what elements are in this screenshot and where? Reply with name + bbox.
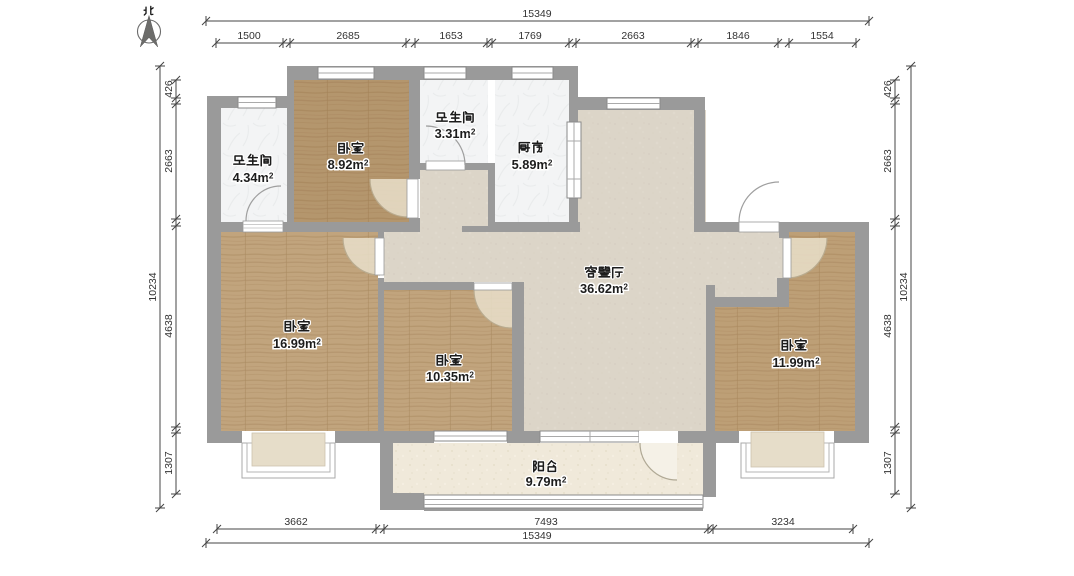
svg-text:3.31m2: 3.31m2 — [435, 126, 476, 141]
svg-text:426: 426 — [882, 80, 894, 98]
svg-text:5.89m2: 5.89m2 — [512, 157, 553, 172]
svg-text:16.99m2: 16.99m2 — [273, 336, 321, 351]
svg-text:1307: 1307 — [882, 451, 894, 475]
svg-text:3234: 3234 — [771, 516, 795, 528]
svg-text:1500: 1500 — [237, 30, 261, 42]
svg-text:15349: 15349 — [522, 8, 551, 20]
svg-text:10234: 10234 — [147, 272, 159, 301]
svg-text:10234: 10234 — [898, 272, 910, 301]
svg-text:1307: 1307 — [163, 451, 175, 475]
svg-text:2663: 2663 — [882, 149, 894, 173]
svg-text:1846: 1846 — [726, 30, 750, 42]
svg-text:10.35m2: 10.35m2 — [426, 369, 474, 384]
svg-text:9.79m2: 9.79m2 — [526, 474, 567, 489]
svg-text:1653: 1653 — [439, 30, 463, 42]
svg-text:3662: 3662 — [284, 516, 308, 528]
svg-text:4638: 4638 — [882, 314, 894, 338]
svg-text:2663: 2663 — [163, 149, 175, 173]
svg-text:8.92m2: 8.92m2 — [328, 157, 369, 172]
svg-text:4638: 4638 — [163, 314, 175, 338]
svg-text:36.62m2: 36.62m2 — [580, 281, 628, 296]
svg-text:7493: 7493 — [534, 516, 558, 528]
svg-text:1554: 1554 — [810, 30, 834, 42]
svg-text:4.34m2: 4.34m2 — [233, 170, 274, 185]
svg-text:11.99m2: 11.99m2 — [772, 355, 820, 370]
svg-text:2663: 2663 — [621, 30, 645, 42]
svg-text:15349: 15349 — [522, 530, 551, 542]
svg-text:2685: 2685 — [336, 30, 360, 42]
svg-text:1769: 1769 — [518, 30, 542, 42]
svg-text:426: 426 — [163, 80, 175, 98]
